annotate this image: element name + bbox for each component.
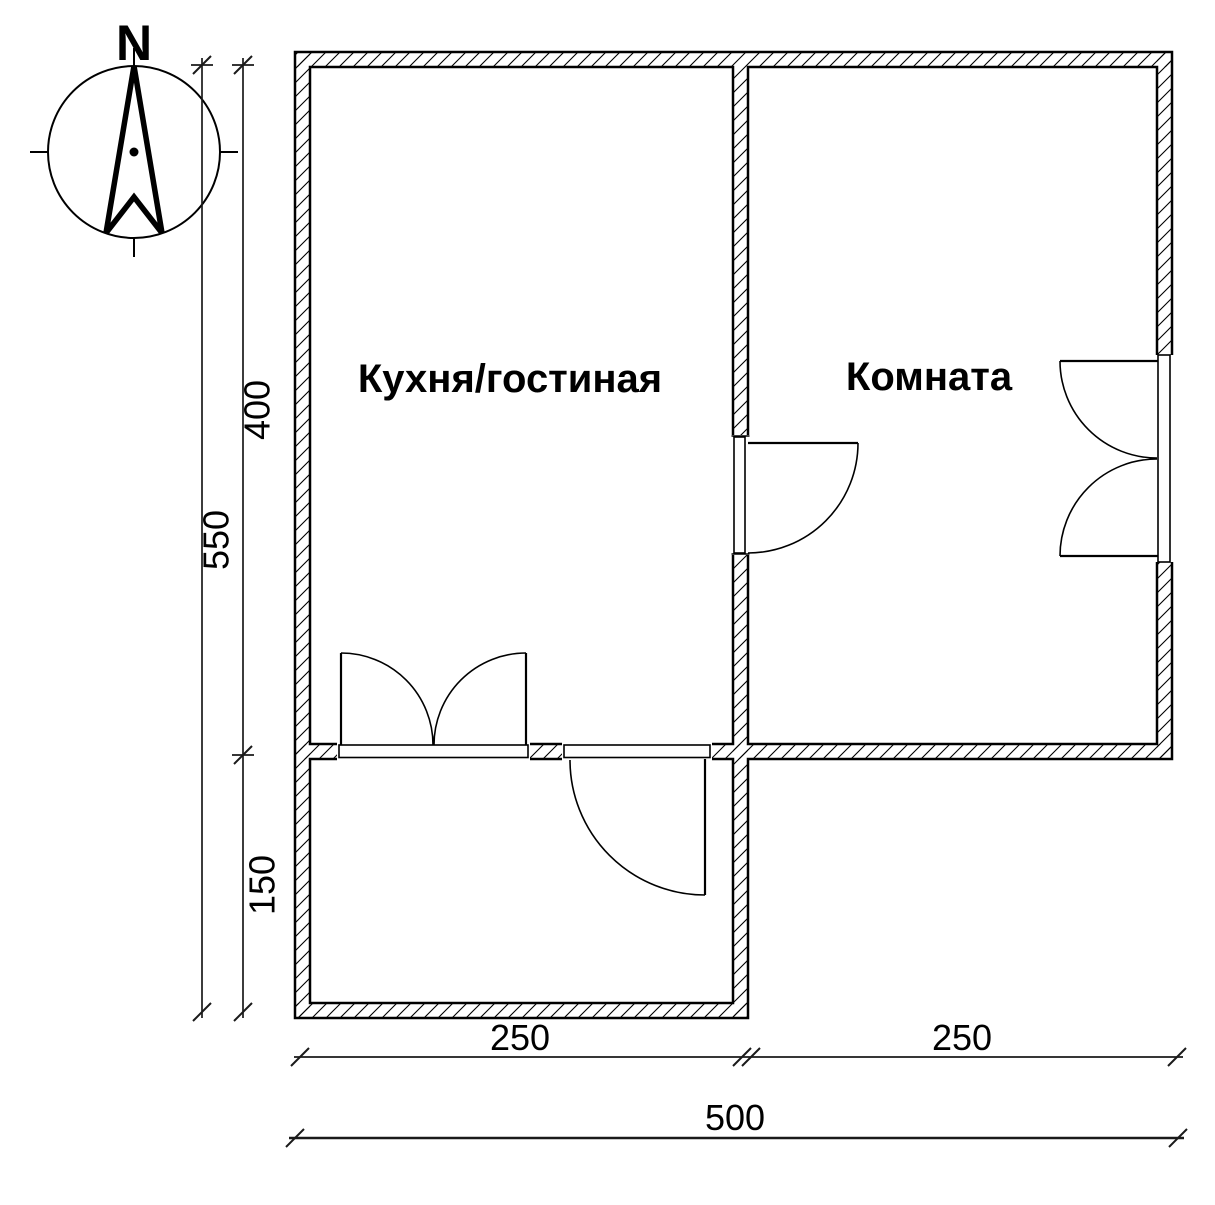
dim-label-250-left: 250: [490, 1017, 550, 1058]
door-room-swing-arc-top: [1060, 361, 1157, 458]
door-hall-jamb: [564, 745, 710, 758]
door-kitchen-double: [337, 653, 530, 761]
door-kitchen-jamb: [339, 745, 528, 758]
door-interior: [731, 435, 859, 555]
compass: [30, 48, 238, 257]
door-room-swing-arc-bottom: [1060, 459, 1157, 556]
floor-plan-drawing: N: [0, 0, 1215, 1200]
dim-label-400: 400: [237, 380, 278, 440]
door-kitchen-swing-arc-left: [341, 653, 433, 745]
door-interior-jamb: [734, 437, 745, 553]
wall-hall-right: [733, 744, 748, 1018]
dim-label-500: 500: [705, 1097, 765, 1138]
outline-kitchen-inner: [310, 67, 733, 744]
room-label-kitchen-living: Кухня/гостиная: [358, 357, 662, 401]
outline-hall-inner: [310, 759, 733, 1003]
door-room-jamb: [1158, 355, 1170, 562]
floor-plan: N: [0, 0, 1215, 1200]
door-kitchen-swing-arc-right: [434, 653, 526, 745]
dim-label-150: 150: [242, 855, 283, 915]
dimension-lines: [191, 56, 1187, 1147]
wall-hall-bottom: [295, 1003, 748, 1018]
room-label-room: Комната: [846, 355, 1013, 399]
door-hall-swing-arc: [570, 760, 705, 895]
dim-label-250-right: 250: [932, 1017, 992, 1058]
wall-interior: [733, 67, 748, 744]
door-room-double: [1060, 355, 1174, 562]
door-interior-swing-arc: [748, 443, 858, 553]
compass-center-dot: [130, 148, 139, 157]
wall-top: [295, 52, 1172, 67]
door-hall-entrance: [562, 743, 712, 896]
wall-left: [295, 52, 310, 1018]
outline-room-inner: [748, 67, 1157, 744]
compass-north-label: N: [116, 15, 152, 71]
dim-label-550: 550: [196, 510, 237, 570]
